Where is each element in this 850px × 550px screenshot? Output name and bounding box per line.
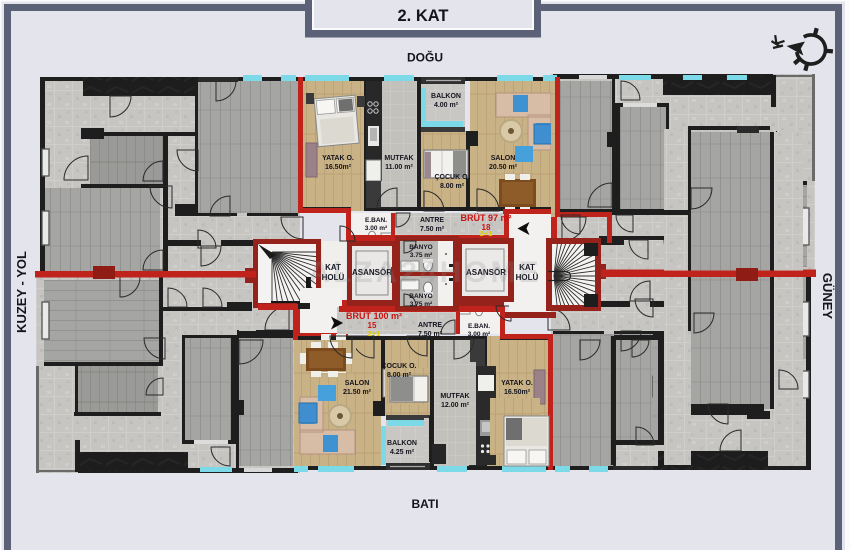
svg-text:20.50 m²: 20.50 m² bbox=[489, 164, 518, 171]
svg-text:ÇOCUK O.: ÇOCUK O. bbox=[435, 174, 470, 181]
svg-text:GÜNEY: GÜNEY bbox=[820, 273, 835, 320]
svg-text:KUZEY - YOL: KUZEY - YOL bbox=[14, 251, 29, 333]
svg-text:SALON: SALON bbox=[491, 155, 516, 162]
svg-text:ALZA24HOME: ALZA24HOME bbox=[308, 256, 541, 289]
svg-text:8.00 m²: 8.00 m² bbox=[387, 372, 412, 379]
svg-text:3.00 m²: 3.00 m² bbox=[365, 225, 388, 232]
svg-text:DOĞU: DOĞU bbox=[407, 50, 443, 65]
svg-text:7.50 m²: 7.50 m² bbox=[418, 331, 443, 338]
svg-text:BRÜT 100 m²: BRÜT 100 m² bbox=[346, 311, 402, 321]
svg-text:16.50m²: 16.50m² bbox=[504, 389, 531, 396]
svg-text:16.50m²: 16.50m² bbox=[325, 164, 352, 171]
svg-text:2+1: 2+1 bbox=[480, 229, 493, 238]
svg-text:ANTRE: ANTRE bbox=[420, 217, 444, 224]
svg-text:BANYO: BANYO bbox=[409, 244, 432, 251]
svg-text:21.50 m²: 21.50 m² bbox=[343, 389, 372, 396]
svg-text:BATI: BATI bbox=[411, 497, 438, 511]
svg-text:MUTFAK: MUTFAK bbox=[440, 393, 469, 400]
svg-text:BANYO: BANYO bbox=[409, 293, 432, 300]
svg-text:SALON: SALON bbox=[345, 380, 370, 387]
svg-text:E.BAN.: E.BAN. bbox=[365, 217, 387, 224]
svg-text:MUTFAK: MUTFAK bbox=[384, 155, 413, 162]
svg-text:3.00 m²: 3.00 m² bbox=[468, 331, 491, 338]
svg-text:4.25 m²: 4.25 m² bbox=[390, 449, 415, 456]
svg-text:7.50 m²: 7.50 m² bbox=[420, 226, 445, 233]
svg-text:2+1: 2+1 bbox=[368, 329, 381, 338]
svg-text:3.75 m²: 3.75 m² bbox=[410, 301, 433, 308]
svg-text:YATAK O.: YATAK O. bbox=[322, 155, 354, 162]
svg-text:BRÜT 97 m²: BRÜT 97 m² bbox=[460, 213, 511, 223]
svg-text:YATAK O.: YATAK O. bbox=[501, 380, 533, 387]
svg-text:E.BAN.: E.BAN. bbox=[468, 323, 490, 330]
svg-text:2. KAT: 2. KAT bbox=[397, 7, 448, 25]
svg-text:ÇOCUK O.: ÇOCUK O. bbox=[382, 363, 417, 370]
svg-text:12.00 m²: 12.00 m² bbox=[441, 402, 470, 409]
svg-text:8.00 m²: 8.00 m² bbox=[440, 183, 465, 190]
svg-text:4.00 m²: 4.00 m² bbox=[434, 102, 459, 109]
svg-text:BALKON: BALKON bbox=[387, 440, 417, 447]
svg-text:11.00 m²: 11.00 m² bbox=[385, 164, 413, 171]
svg-text:ANTRE: ANTRE bbox=[418, 322, 442, 329]
svg-text:BALKON: BALKON bbox=[431, 93, 461, 100]
